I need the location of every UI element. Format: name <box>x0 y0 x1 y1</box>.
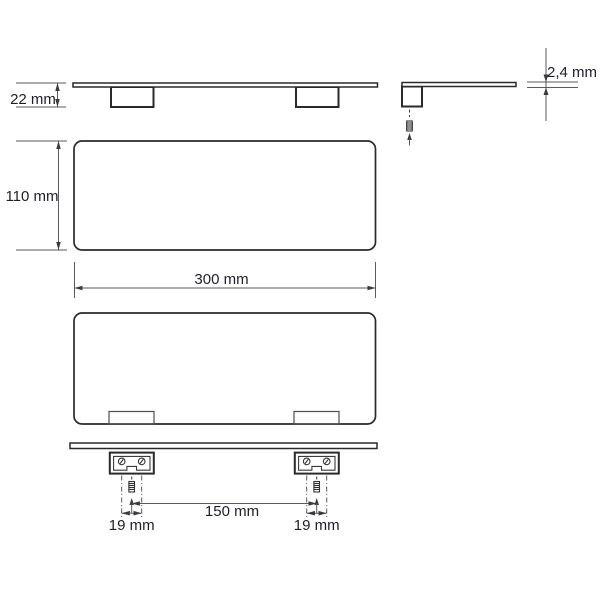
screw-icon <box>128 482 135 493</box>
height-dimension: 22 mm <box>10 83 66 108</box>
side-shelf-plate <box>402 83 516 87</box>
screw-icon <box>313 482 320 493</box>
front-shelf-plate <box>73 83 378 87</box>
underside-view <box>74 313 376 424</box>
depth-dimension-label: 110 mm <box>5 188 58 205</box>
arrow-head-up <box>544 88 549 96</box>
hole-spacing-left-label: 19 mm <box>109 517 155 534</box>
depth-dimension: 110 mm <box>5 141 67 250</box>
top-shelf-outline <box>74 141 376 250</box>
mounting-spacing-label: 150 mm <box>205 503 259 520</box>
thickness-dimension-label: 2,4 mm <box>547 64 597 81</box>
mount-direction-arrow-icon <box>407 133 412 146</box>
width-dimension-label: 300 mm <box>194 271 248 288</box>
top-view <box>74 141 376 250</box>
underside-bracket-left <box>109 412 154 424</box>
hole-spacing-right-label: 19 mm <box>294 517 340 534</box>
shelf-dimension-drawing: 22 mm 2,4 mm 110 mm <box>0 0 600 600</box>
technical-drawing-page: 22 mm 2,4 mm 110 mm <box>0 0 600 600</box>
underside-shelf-outline <box>74 313 376 424</box>
side-bracket <box>402 87 422 107</box>
height-dimension-label: 22 mm <box>10 91 56 108</box>
thickness-dimension: 2,4 mm <box>527 48 597 121</box>
mount-direction-arrow-icon <box>314 498 319 513</box>
wall-plate-right <box>295 453 339 474</box>
front-bracket-right <box>296 87 339 107</box>
mount-direction-arrow-icon <box>129 498 134 513</box>
arrow-head <box>407 133 412 140</box>
screw-icon <box>406 121 413 131</box>
width-dimension: 300 mm <box>75 262 376 298</box>
wall-plate-left <box>110 453 154 474</box>
front-bracket-left <box>111 87 154 107</box>
hole-spacing-dimension-right: 19 mm <box>294 513 340 534</box>
hole-spacing-dimension-left: 19 mm <box>109 513 155 534</box>
mounting-shelf-edge <box>70 443 377 449</box>
mounting-spacing-dimension: 150 mm <box>132 503 317 520</box>
front-view <box>73 83 378 107</box>
underside-bracket-right <box>294 412 339 424</box>
side-view <box>402 83 516 146</box>
